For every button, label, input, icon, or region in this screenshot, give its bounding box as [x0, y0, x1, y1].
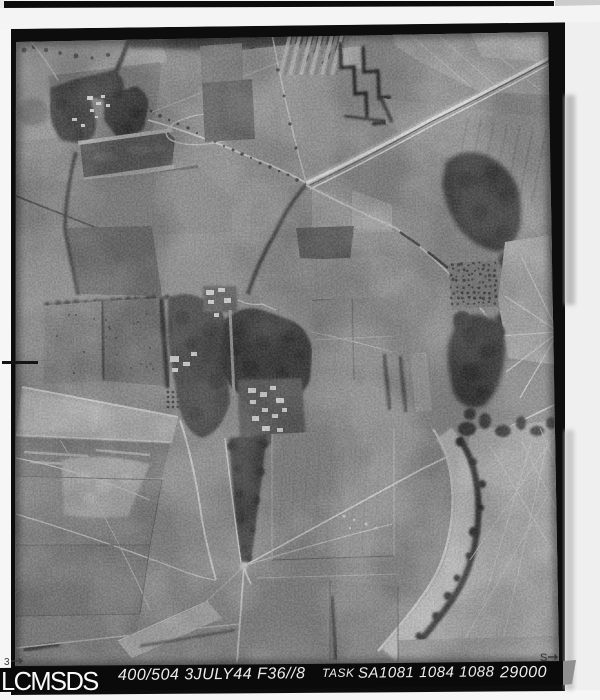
svg-text:SA1081 1084 1088: SA1081 1084 1088 — [358, 663, 495, 681]
svg-text:TASK: TASK — [322, 666, 355, 680]
svg-text:29000: 29000 — [499, 664, 547, 681]
svg-text:LCMSDS: LCMSDS — [1, 668, 98, 696]
svg-text:400/504 3JULY44 F36//8: 400/504 3JULY44 F36//8 — [118, 665, 306, 684]
svg-text:3: 3 — [4, 657, 10, 668]
